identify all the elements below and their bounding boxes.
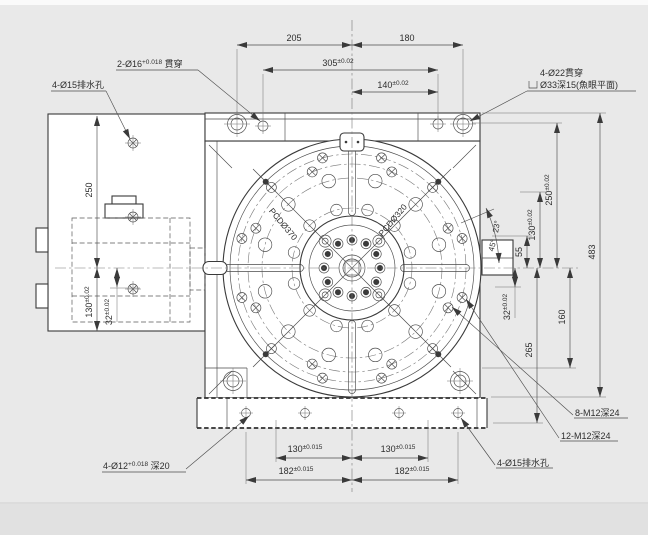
dim-180: 180: [399, 33, 414, 43]
dim-265: 265: [524, 342, 534, 357]
note-drain-top: 4-Ø15排水孔: [52, 79, 104, 90]
top-margin: [0, 0, 648, 5]
dim-160: 160: [557, 309, 567, 324]
dim-205: 205: [286, 33, 301, 43]
connector-top: [112, 196, 136, 204]
left-tab-upper: [36, 228, 48, 252]
left-side-plate: [36, 114, 205, 331]
connector-base: [105, 204, 143, 218]
dim-483: 483: [587, 244, 597, 259]
note-drain-bottom: 4-Ø15排水孔: [497, 457, 549, 468]
technical-drawing: 205 180 305±0.02 140±0.02 483 250±0.02 1…: [0, 0, 648, 535]
bottom-margin: [0, 504, 648, 535]
dim-250-left: 250: [84, 182, 94, 197]
note-12m12: 12-M12深24: [561, 431, 611, 441]
rotary-table-drawing: 205 180 305±0.02 140±0.02 483 250±0.02 1…: [0, 0, 648, 535]
note-8m12: 8-M12深24: [575, 408, 620, 418]
left-tab-lower: [36, 284, 48, 308]
dim-55: 55: [514, 247, 524, 257]
note-cbore-line1: 4-Ø22貫穿: [540, 67, 583, 78]
note-cbore-line2: Ø33深15(魚眼平面): [540, 79, 618, 90]
